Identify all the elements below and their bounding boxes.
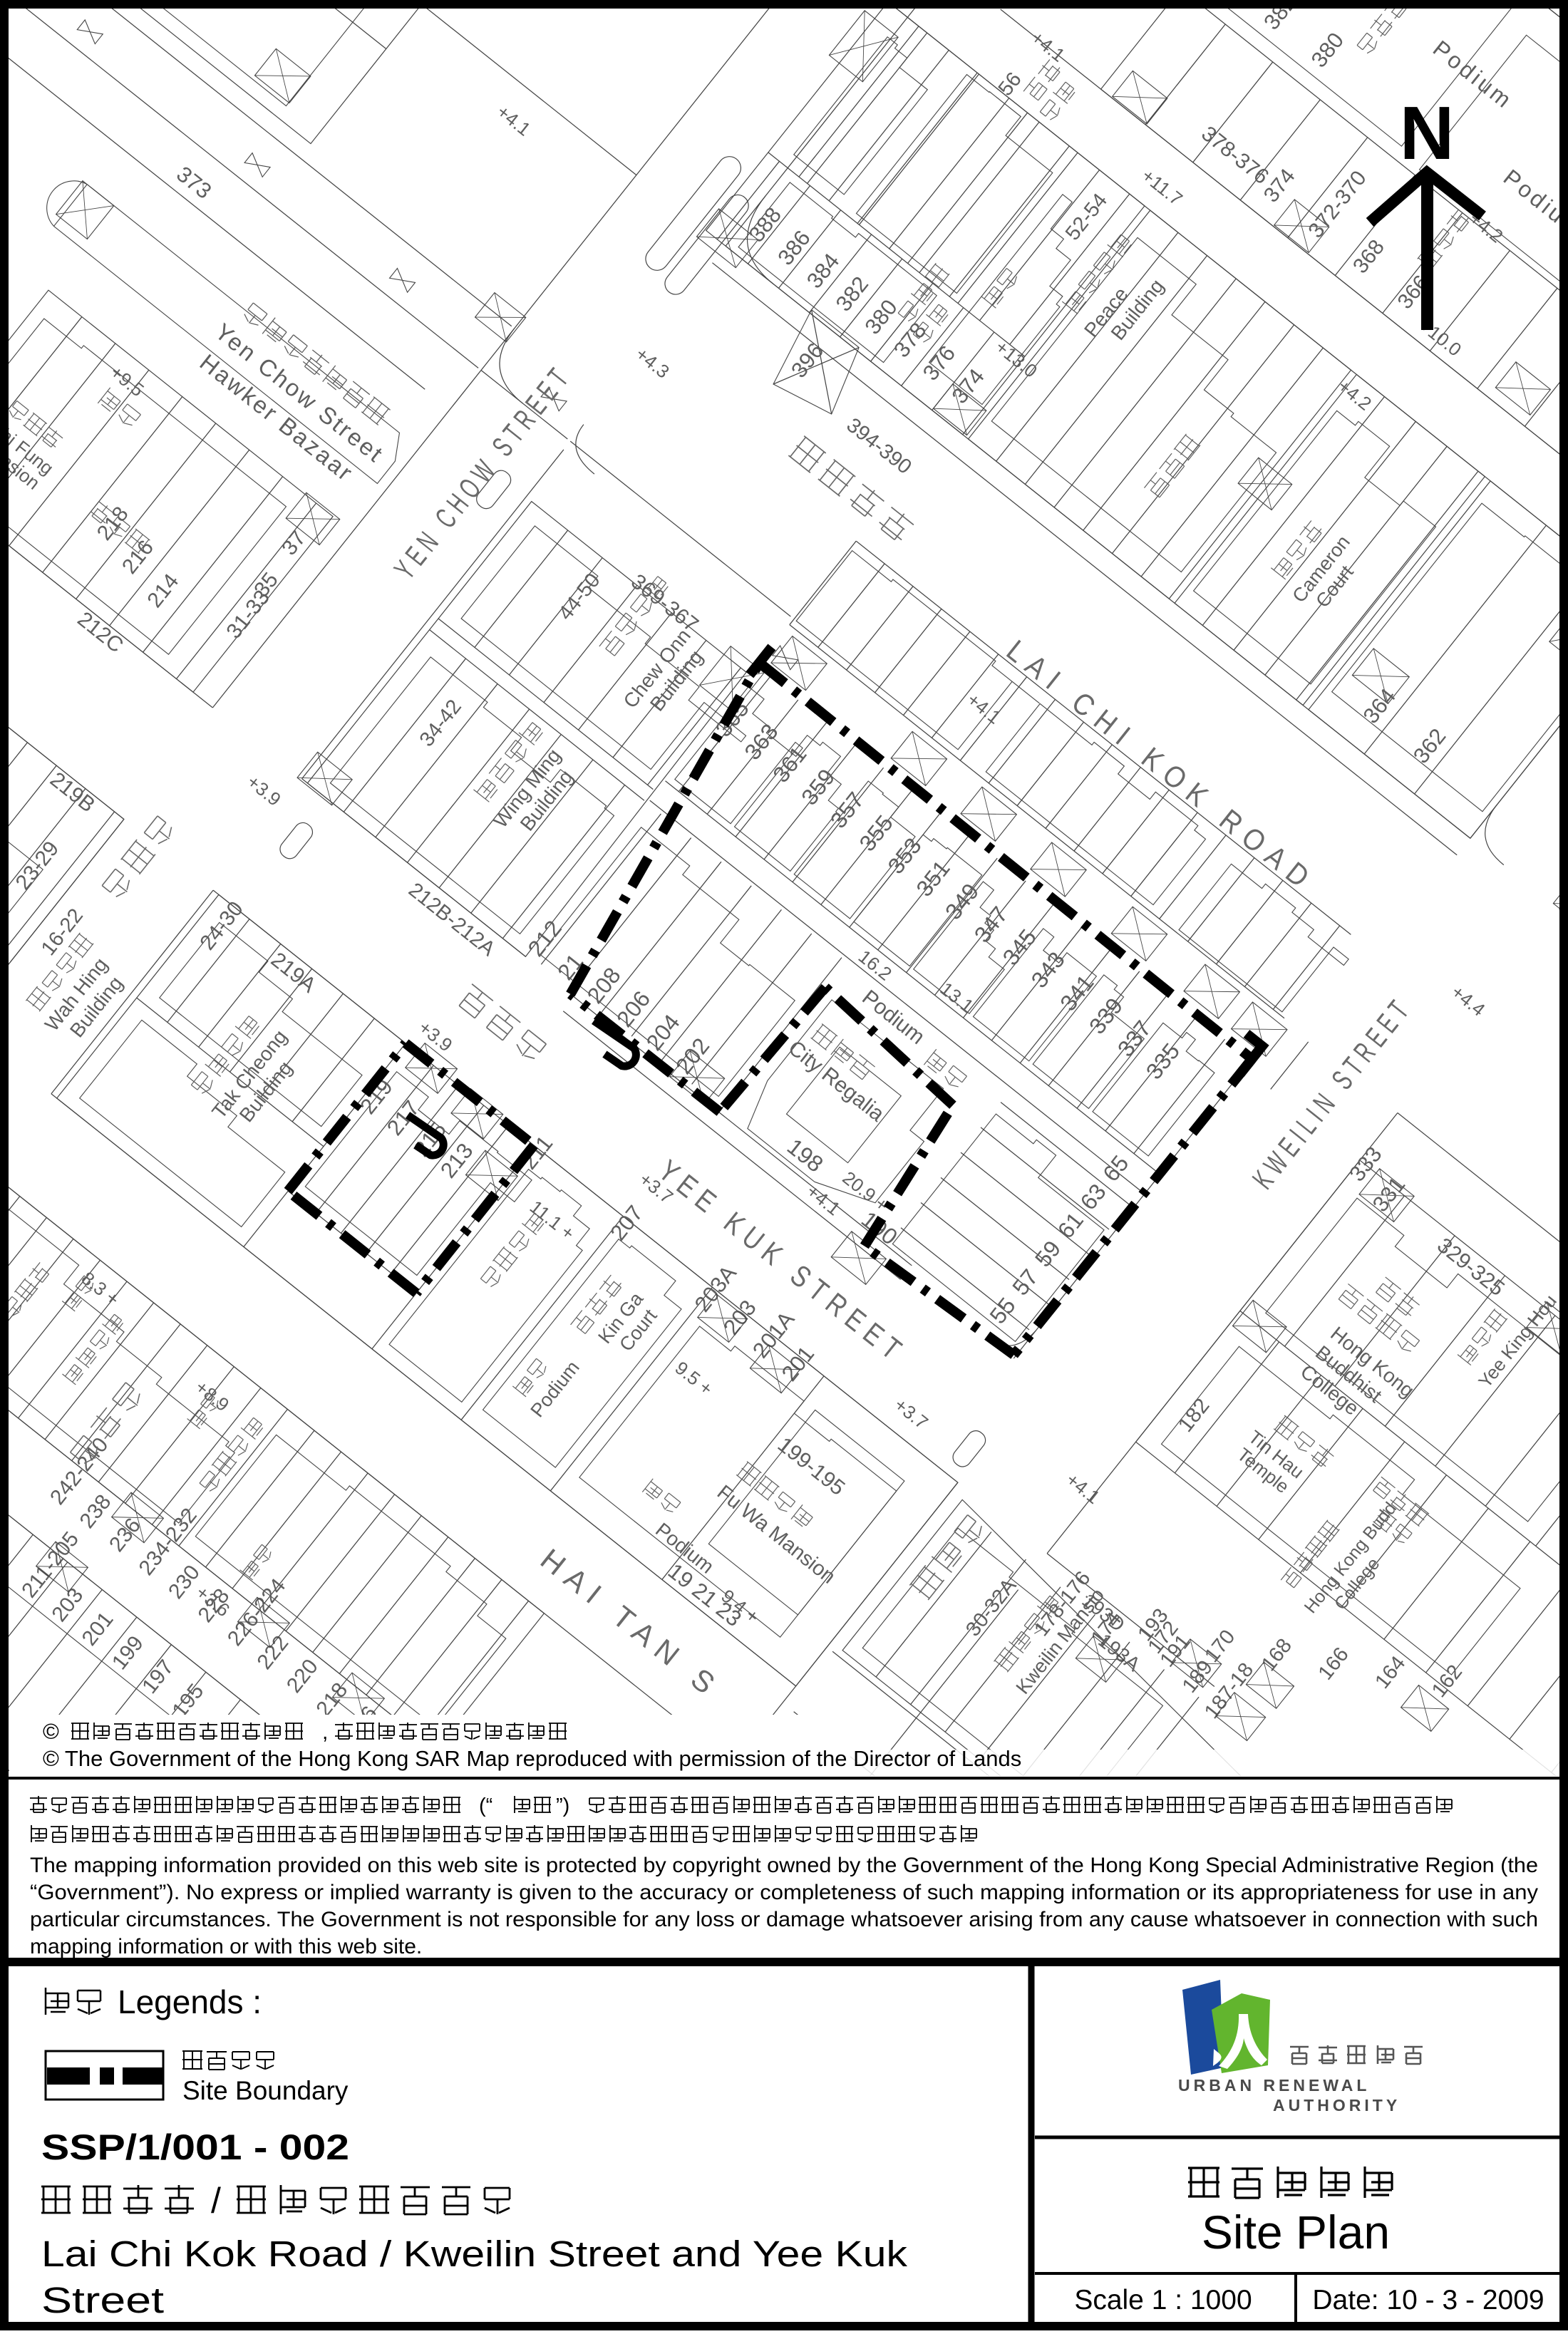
svg-text:/: /	[211, 2181, 221, 2221]
svg-text:URBAN RENEWAL: URBAN RENEWAL	[1178, 2076, 1370, 2095]
svg-text:© The Government of the Hong K: © The Government of the Hong Kong SAR Ma…	[43, 1746, 1021, 1771]
svg-text:SSP/1/001 - 002: SSP/1/001 - 002	[41, 2127, 349, 2167]
svg-text:”): ”)	[556, 1795, 569, 1817]
svg-text:Lai Chi Kok Road / Kweilin Str: Lai Chi Kok Road / Kweilin Street and Ye…	[41, 2234, 908, 2274]
svg-text:Site Plan: Site Plan	[1202, 2206, 1390, 2258]
svg-text:Scale 1 : 1000: Scale 1 : 1000	[1074, 2285, 1252, 2315]
svg-text:The mapping information provid: The mapping information provided on this…	[30, 1854, 1538, 1877]
svg-text:“Government”). No express or i: “Government”). No express or implied war…	[30, 1881, 1538, 1904]
svg-text:Site Boundary: Site Boundary	[182, 2076, 349, 2105]
svg-text:AUTHORITY: AUTHORITY	[1273, 2096, 1401, 2114]
svg-text:Date: 10 - 3 - 2009: Date: 10 - 3 - 2009	[1312, 2285, 1544, 2315]
svg-text:©: ©	[43, 1719, 59, 1744]
svg-text:,: ,	[322, 1720, 328, 1744]
svg-text:Legends :: Legends :	[118, 1983, 262, 2020]
svg-text:particular circumstances. The: particular circumstances. The Government…	[30, 1908, 1538, 1931]
svg-text:Street: Street	[41, 2280, 164, 2320]
svg-text:N: N	[1400, 91, 1455, 175]
svg-text:(“: (“	[479, 1795, 492, 1817]
svg-text:mapping information or with th: mapping information or with this web sit…	[30, 1935, 422, 1958]
